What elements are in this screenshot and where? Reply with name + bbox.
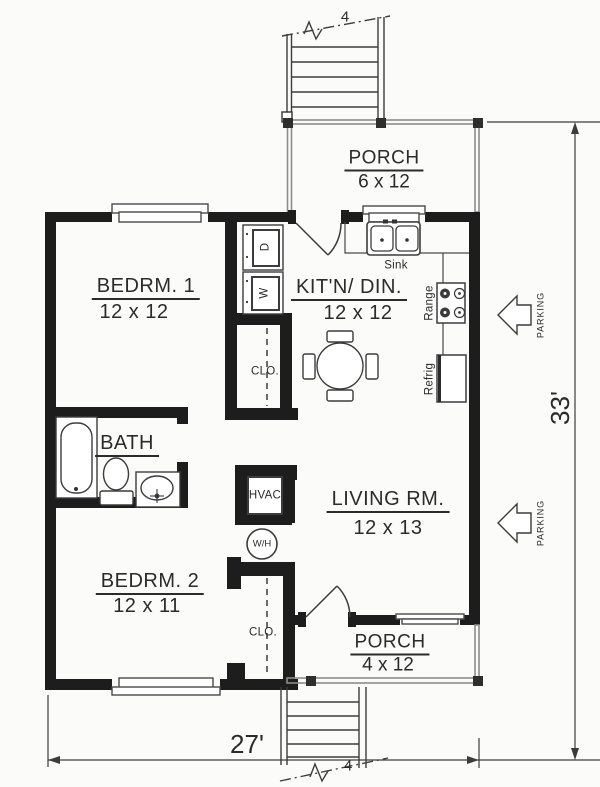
range-label: Range: [424, 285, 436, 320]
washer-dryer: [243, 225, 283, 314]
dining-table: [303, 331, 378, 401]
living-room-entry-door: [306, 586, 350, 617]
parking-lower-label: PARKING: [537, 500, 546, 546]
stair-width-top-dimension: 4: [341, 10, 349, 25]
porch-bottom-size: 4 x 12: [362, 656, 414, 675]
bedroom2-label: BEDRM. 2: [96, 571, 204, 595]
plan-canvas: [0, 0, 600, 787]
bottom-stairs-cut-line: [280, 758, 388, 781]
porch-top-size: 6 x 12: [358, 173, 410, 192]
living-room-label: LIVING RM.: [327, 489, 450, 513]
range: [437, 283, 465, 323]
water-heater-label: W/H: [253, 539, 271, 549]
closet-lower-label: CLO.: [249, 627, 277, 639]
porch-bottom-label: PORCH: [350, 633, 429, 656]
refrigerator: [437, 355, 466, 402]
parking-arrow-upper: [498, 296, 531, 334]
hvac-label: HVAC: [249, 490, 281, 502]
porch-top-label: PORCH: [344, 149, 423, 172]
parking-arrow-lower: [498, 504, 531, 542]
refrigerator-label: Refrig: [424, 363, 436, 395]
bedroom1-window: [112, 204, 208, 222]
bedroom2-window: [112, 678, 220, 695]
living-room-window: [396, 614, 464, 624]
bottom-stairs: [281, 687, 366, 768]
overall-height-dimension: 33': [547, 391, 573, 425]
toilet: [100, 458, 133, 505]
parking-upper-label: PARKING: [537, 292, 546, 338]
bedroom1-size: 12 x 12: [99, 302, 168, 322]
closet-upper-label: CLO.: [251, 366, 279, 378]
kitchen-sink: [367, 220, 420, 256]
stair-width-bottom-dimension: 4: [344, 759, 352, 774]
kitchen-label: KIT'N/ DIN.: [291, 277, 407, 301]
sink-label: Sink: [384, 260, 408, 272]
top-stairs-cut-line: [282, 16, 390, 39]
dryer-label: D: [260, 243, 272, 252]
bathtub: [56, 417, 97, 498]
living-room-size: 12 x 13: [353, 518, 422, 538]
floor-plan: PORCH 6 x 12 BEDRM. 1 12 x 12 KIT'N/ DIN…: [0, 0, 600, 787]
overall-width-dimension: 27': [230, 731, 264, 757]
bedroom1-label: BEDRM. 1: [92, 276, 200, 300]
door-jambs: [288, 210, 356, 627]
bath-label: BATH: [95, 433, 159, 457]
bedroom2-size: 12 x 11: [113, 596, 181, 616]
kitchen-entry-door: [296, 223, 341, 255]
washer-label: W: [259, 287, 271, 298]
vanity-sink: [136, 472, 180, 507]
parking-arrows: [498, 296, 531, 542]
kitchen-size: 12 x 12: [323, 303, 392, 323]
